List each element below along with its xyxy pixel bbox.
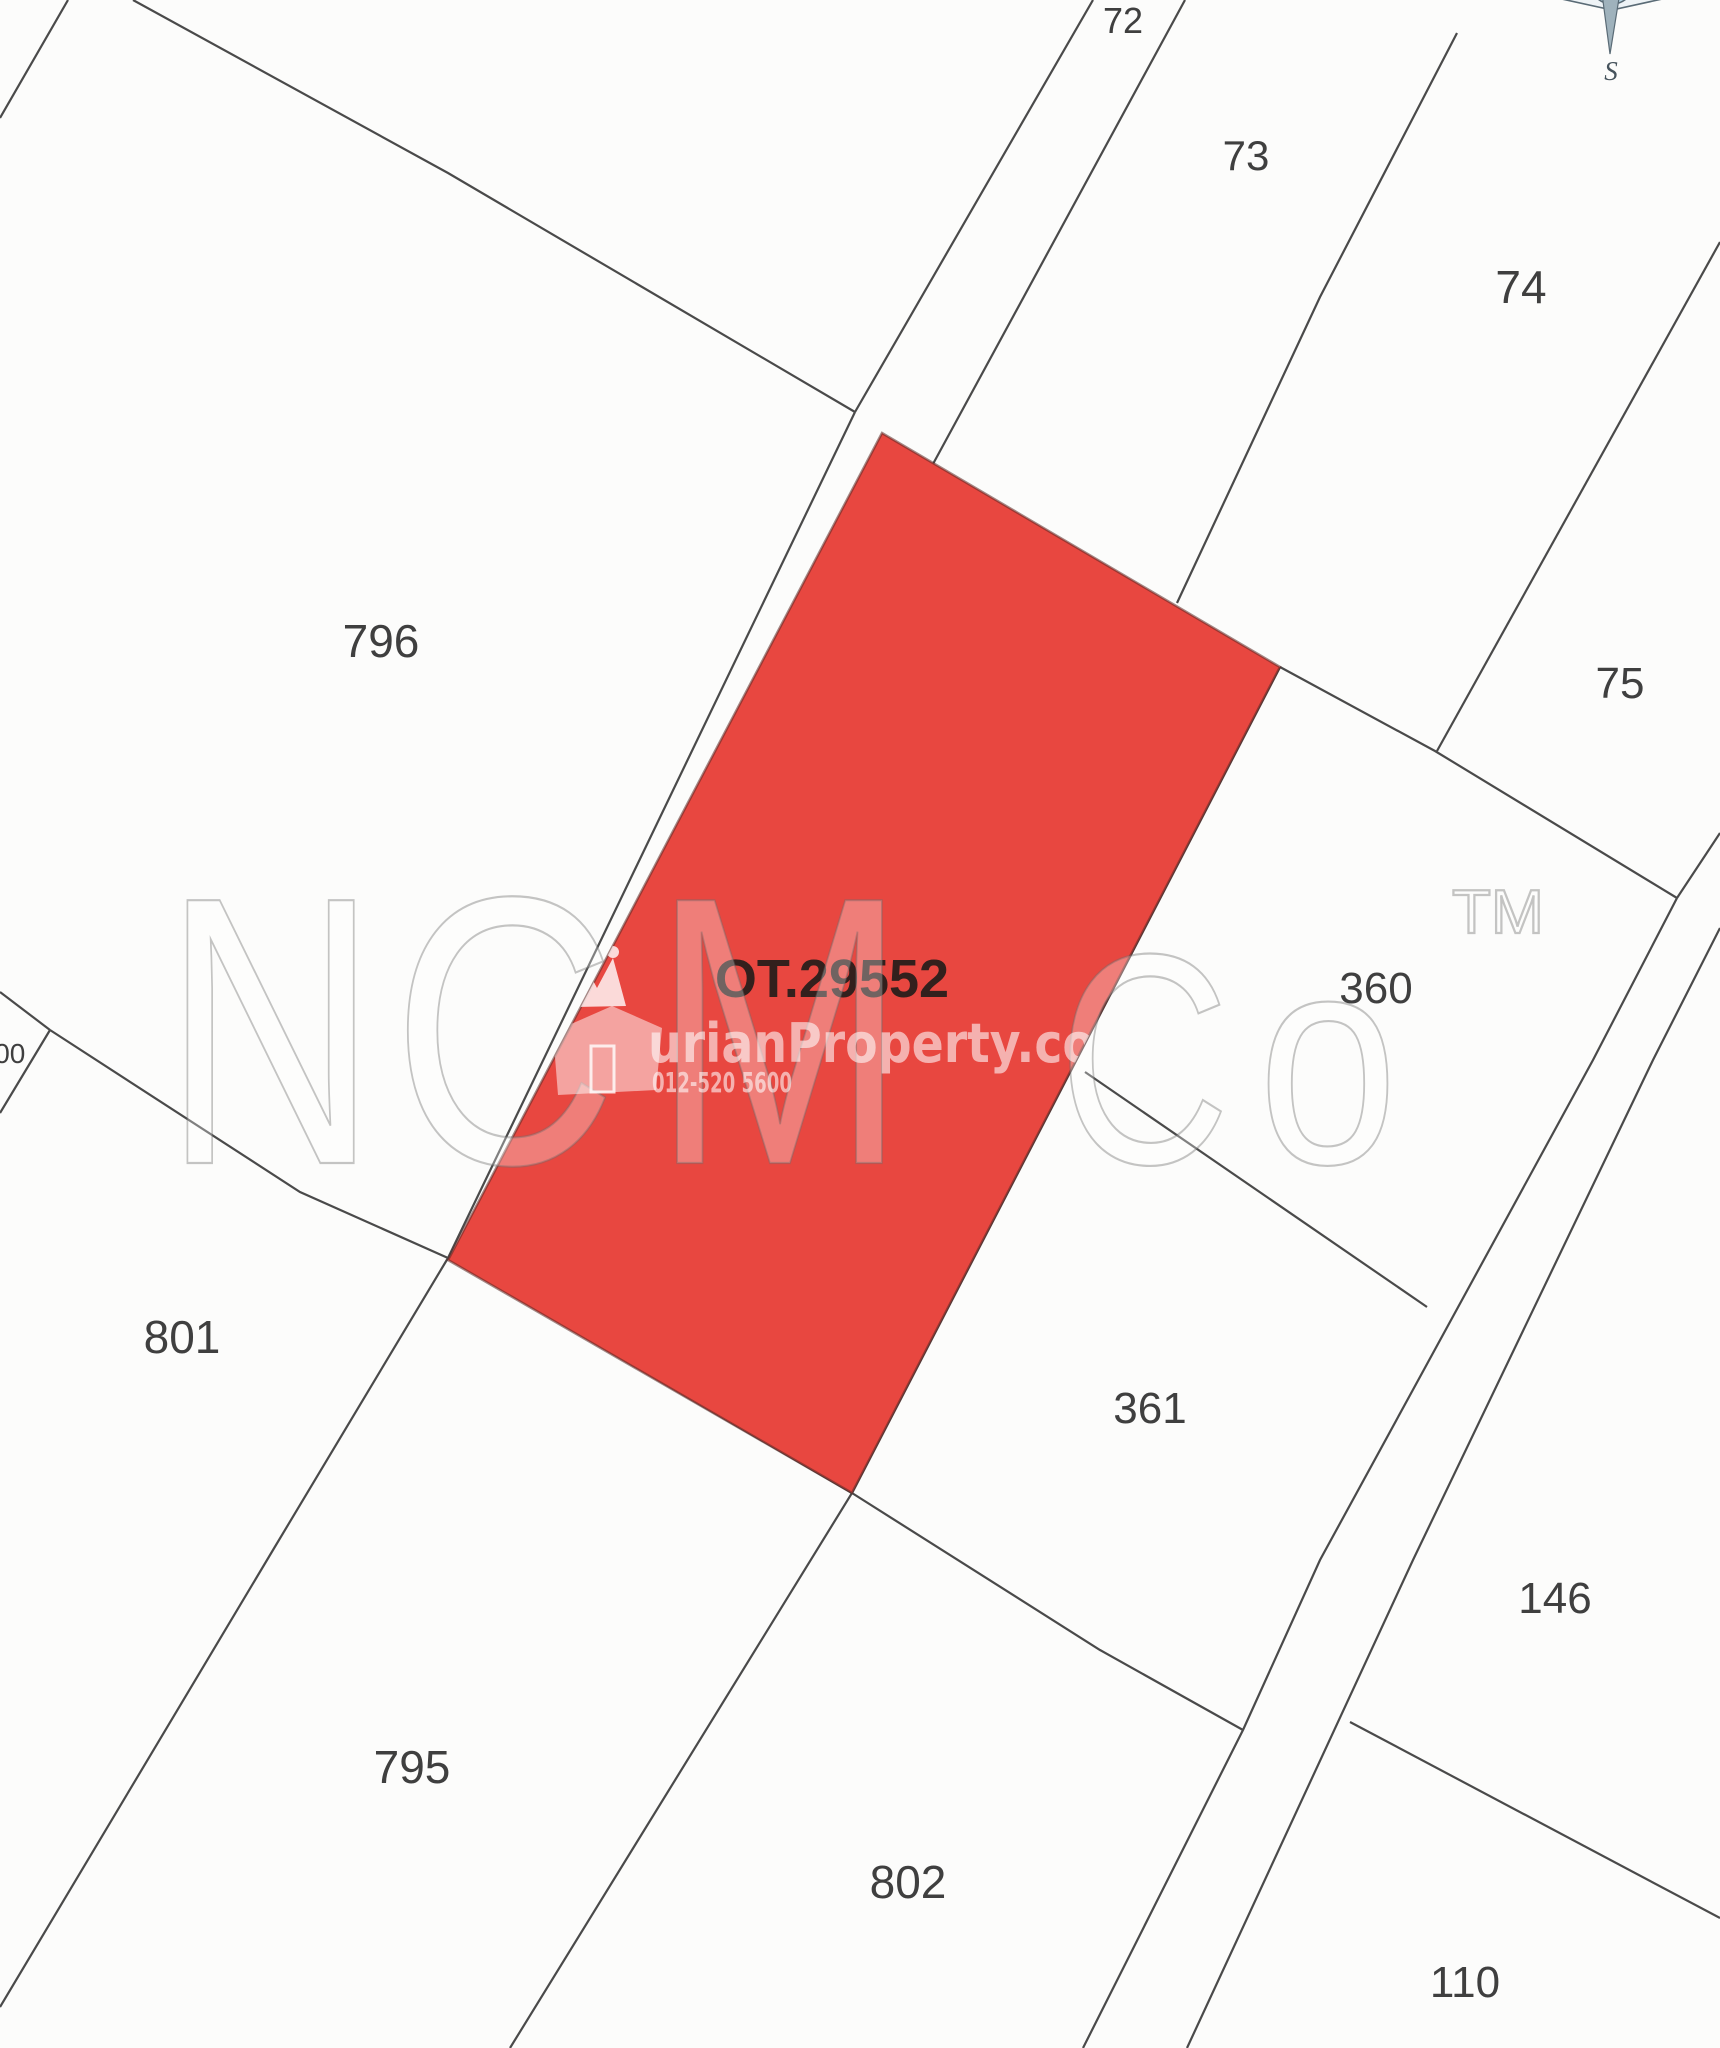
- parcel-label: 796: [343, 615, 420, 667]
- parcel-label: 800: [0, 1038, 25, 1069]
- boundary-line: [1437, 242, 1720, 751]
- watermark-brand-letter: N: [163, 817, 378, 1244]
- boundary-line: [1177, 33, 1457, 603]
- boundary-line: [1677, 833, 1720, 898]
- boundary-line: [0, 0, 68, 118]
- parcel-label: 74: [1495, 261, 1546, 313]
- parcel-label: 802: [870, 1856, 947, 1908]
- boundary-line: [1350, 1722, 1720, 1918]
- boundary-line: [133, 0, 855, 412]
- compass-east-point-icon: [1612, 0, 1720, 10]
- parcel-label: 801: [144, 1311, 221, 1363]
- parcel-label: 110: [1430, 1958, 1500, 2007]
- parcel-label: 360: [1339, 964, 1412, 1013]
- boundary-line: [855, 0, 1093, 412]
- boundary-line: [0, 992, 50, 1030]
- parcel-label: 146: [1518, 1574, 1591, 1623]
- watermark-brand-letter: o: [1258, 891, 1398, 1227]
- watermark-brand-letter: C: [1058, 891, 1230, 1227]
- watermark-trademark: TM: [1452, 878, 1544, 947]
- cadastral-map-canvas: OT.29552 NCMCo TM urianProperty.co 012-5…: [0, 0, 1720, 2048]
- boundary-line: [852, 1493, 1243, 1730]
- cadastral-map: OT.29552 NCMCo TM urianProperty.co 012-5…: [0, 0, 1720, 2048]
- compass-west-point-icon: [1484, 0, 1612, 10]
- parcel-label: 73: [1223, 132, 1270, 179]
- compass-south-label: S: [1604, 56, 1618, 86]
- watermark-phone: 012-520 5600: [652, 1066, 792, 1099]
- parcel-label: 361: [1113, 1384, 1186, 1433]
- parcel-label: 72: [1103, 0, 1143, 41]
- boundary-line: [0, 1258, 448, 2007]
- boundary-line: [933, 0, 1185, 464]
- parcel-label: 75: [1596, 659, 1645, 708]
- parcel-label: 795: [374, 1741, 451, 1793]
- compass-south-needle-icon: [1601, 0, 1621, 54]
- compass-rose: S: [1484, 0, 1720, 86]
